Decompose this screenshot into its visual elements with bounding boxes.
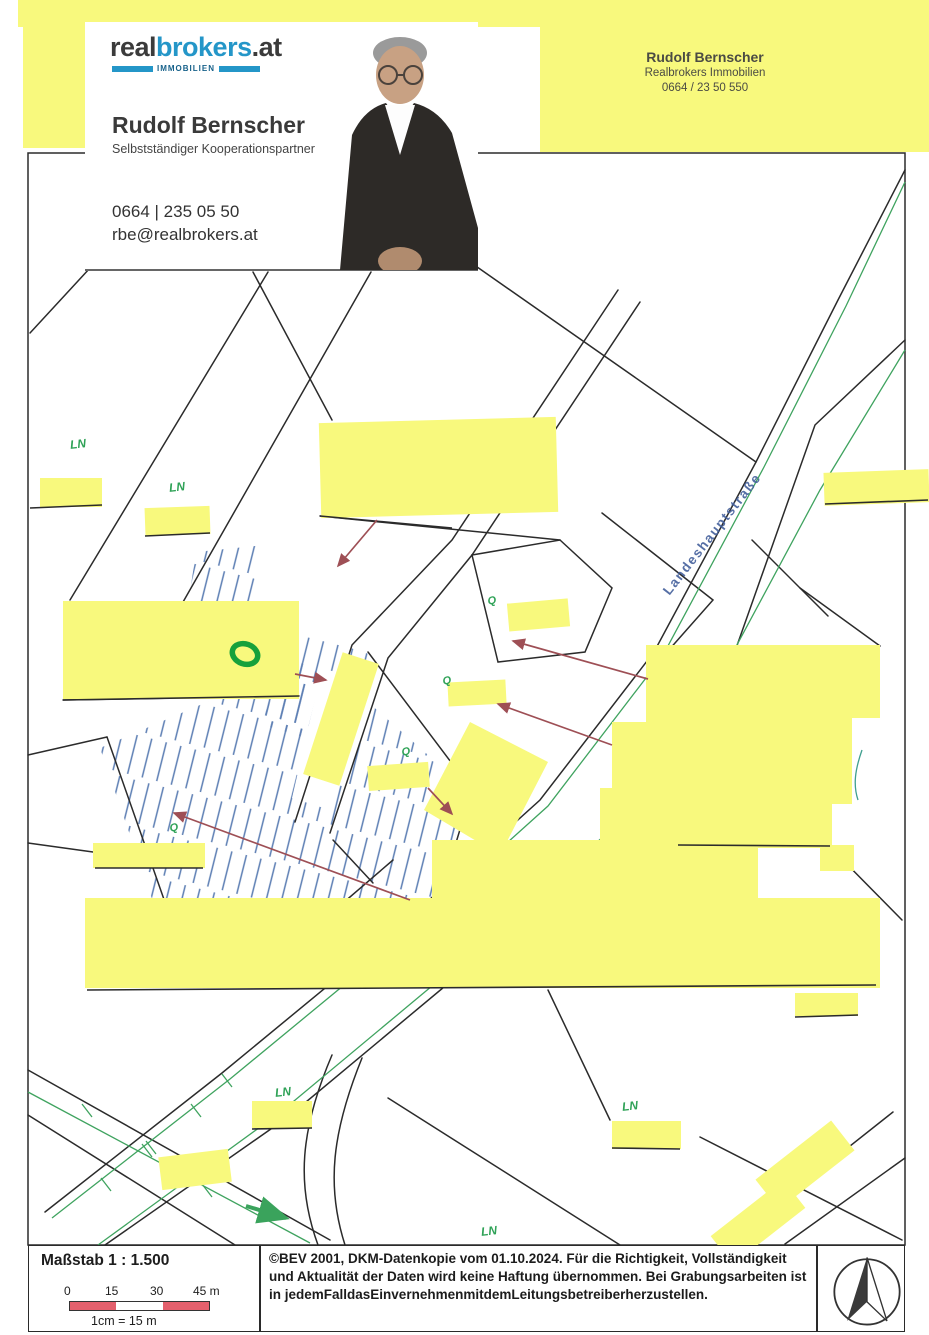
contact-note-company: Realbrokers Immobilien <box>595 66 815 81</box>
footer-divider <box>816 1246 818 1331</box>
contact-note-phone: 0664 / 23 50 550 <box>595 81 815 96</box>
copyright-line-1: ©BEV 2001, DKM-Datenkopie vom 01.10.2024… <box>269 1251 787 1266</box>
scale-bar-segment <box>70 1302 116 1310</box>
scale-tick-0: 0 <box>64 1284 71 1298</box>
scale-bar-segment <box>116 1302 162 1310</box>
footer-divider <box>259 1246 261 1331</box>
copyright-line-3: jedemFalldasEinvernehmenmitdemLeitungsbe… <box>285 1287 708 1302</box>
map-footer: Maßstab 1 : 1.500 0 15 30 45 m 1cm = 15 … <box>28 1245 905 1332</box>
left-highlight-strip <box>23 3 85 148</box>
logo-text-brokers: brokers <box>156 32 252 62</box>
contact-note-name: Rudolf Bernscher <box>595 48 815 66</box>
north-arrow-icon <box>827 1252 907 1330</box>
agent-name: Rudolf Bernscher <box>112 112 305 139</box>
realbrokers-logo: realbrokers.at <box>110 32 282 63</box>
scale-tick-15: 15 <box>105 1284 118 1298</box>
copyright-text: ©BEV 2001, DKM-Datenkopie vom 01.10.2024… <box>269 1250 809 1305</box>
logo-bar-left <box>112 66 153 72</box>
scale-bar <box>69 1301 210 1311</box>
business-card: realbrokers.at IMMOBILIEN Rudolf Bernsch… <box>85 22 478 271</box>
logo-bar-right <box>219 66 260 72</box>
agent-phone: 0664 | 235 05 50 <box>112 202 239 222</box>
agent-email: rbe@realbrokers.at <box>112 225 258 245</box>
scale-note: 1cm = 15 m <box>91 1314 157 1328</box>
scale-bar-segment <box>163 1302 209 1310</box>
scale-label: Maßstab 1 : 1.500 <box>41 1252 169 1270</box>
scanned-cadastral-map-page: LandeshauptstraßeLNLNLNLNLNQQQQ Rudolf B… <box>0 0 929 1335</box>
scale-tick-30: 30 <box>150 1284 163 1298</box>
agent-subtitle: Selbstständiger Kooperationspartner <box>112 142 315 156</box>
agent-portrait-photo <box>322 23 478 270</box>
logo-tagline-bar: IMMOBILIEN <box>112 64 260 73</box>
logo-tagline: IMMOBILIEN <box>157 64 215 73</box>
scale-tick-45: 45 m <box>193 1284 220 1298</box>
contact-note-sticky: Rudolf Bernscher Realbrokers Immobilien … <box>540 0 929 152</box>
logo-text-tld: .at <box>252 32 282 62</box>
logo-text-real: real <box>110 32 156 62</box>
contact-note: Rudolf Bernscher Realbrokers Immobilien … <box>595 48 815 96</box>
